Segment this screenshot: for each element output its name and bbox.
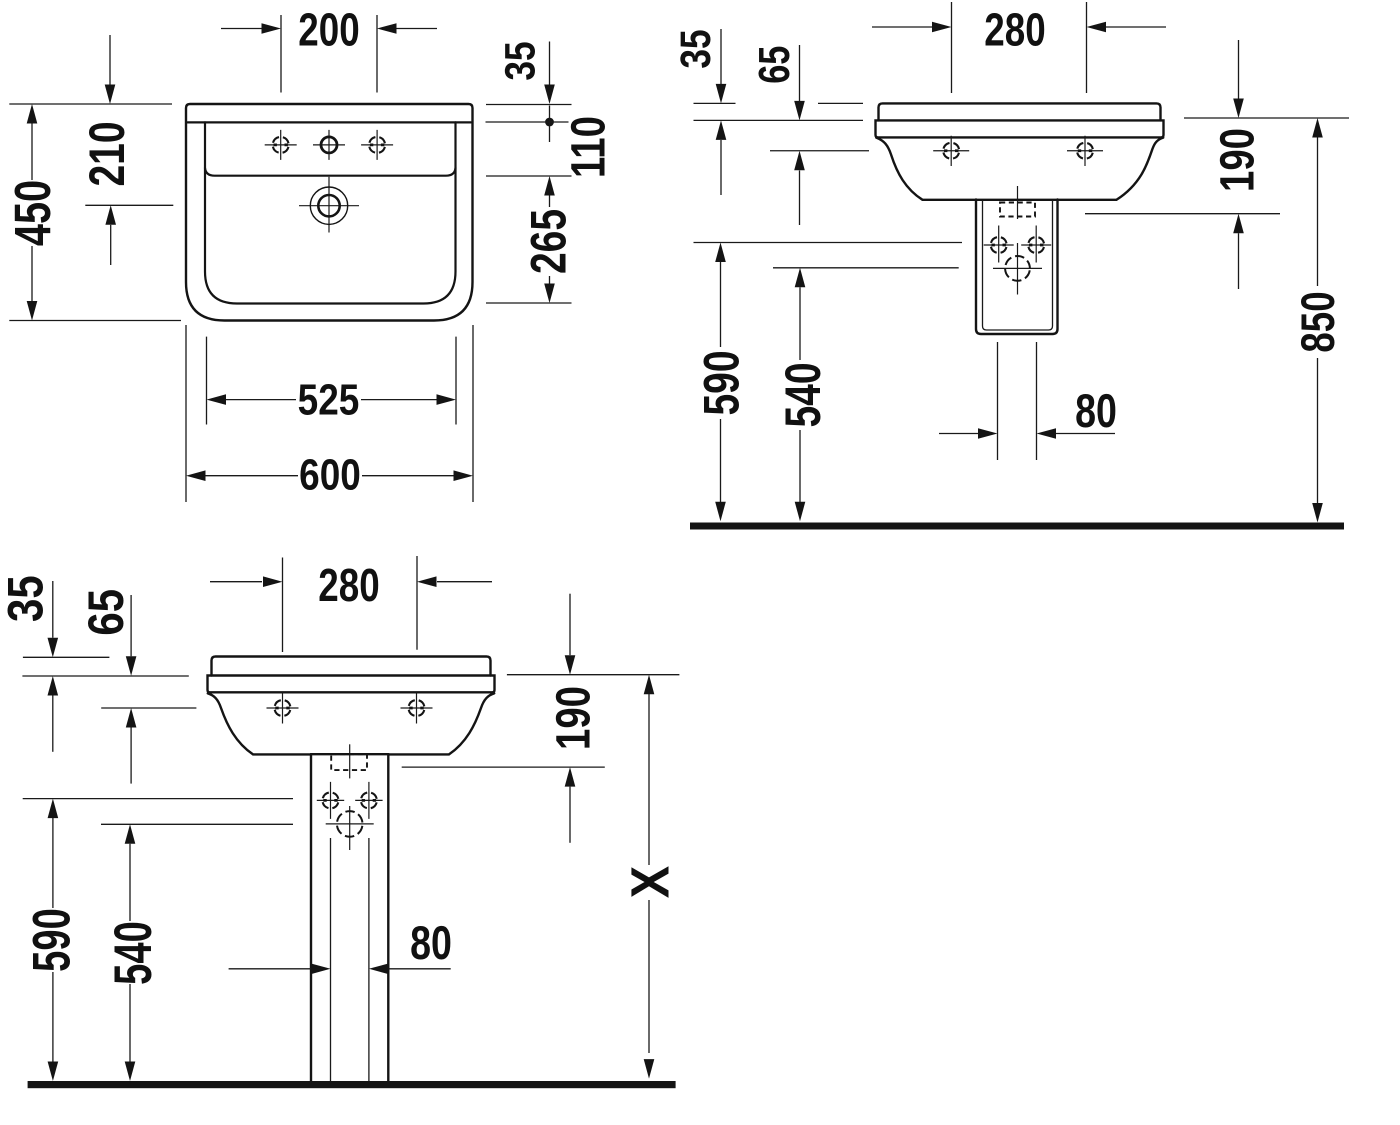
svg-text:540: 540 [774, 362, 831, 427]
svg-text:210: 210 [78, 121, 135, 186]
svg-text:35: 35 [496, 41, 544, 80]
svg-text:80: 80 [410, 917, 452, 970]
svg-text:200: 200 [298, 3, 359, 55]
svg-text:850: 850 [1292, 291, 1344, 352]
svg-text:190: 190 [1212, 128, 1265, 192]
svg-text:280: 280 [318, 559, 379, 611]
svg-text:65: 65 [77, 589, 133, 636]
svg-text:65: 65 [750, 46, 799, 84]
svg-text:190: 190 [548, 686, 601, 750]
svg-text:540: 540 [103, 921, 163, 985]
svg-text:590: 590 [693, 350, 750, 415]
svg-text:600: 600 [299, 450, 361, 500]
svg-text:80: 80 [1075, 385, 1117, 438]
svg-text:265: 265 [520, 209, 577, 274]
svg-text:35: 35 [672, 29, 720, 68]
svg-text:35: 35 [0, 575, 53, 622]
svg-text:110: 110 [563, 116, 616, 178]
svg-text:590: 590 [21, 908, 81, 972]
svg-text:X: X [619, 866, 680, 898]
svg-text:280: 280 [984, 3, 1045, 55]
svg-text:525: 525 [298, 375, 360, 425]
svg-text:450: 450 [4, 180, 61, 246]
